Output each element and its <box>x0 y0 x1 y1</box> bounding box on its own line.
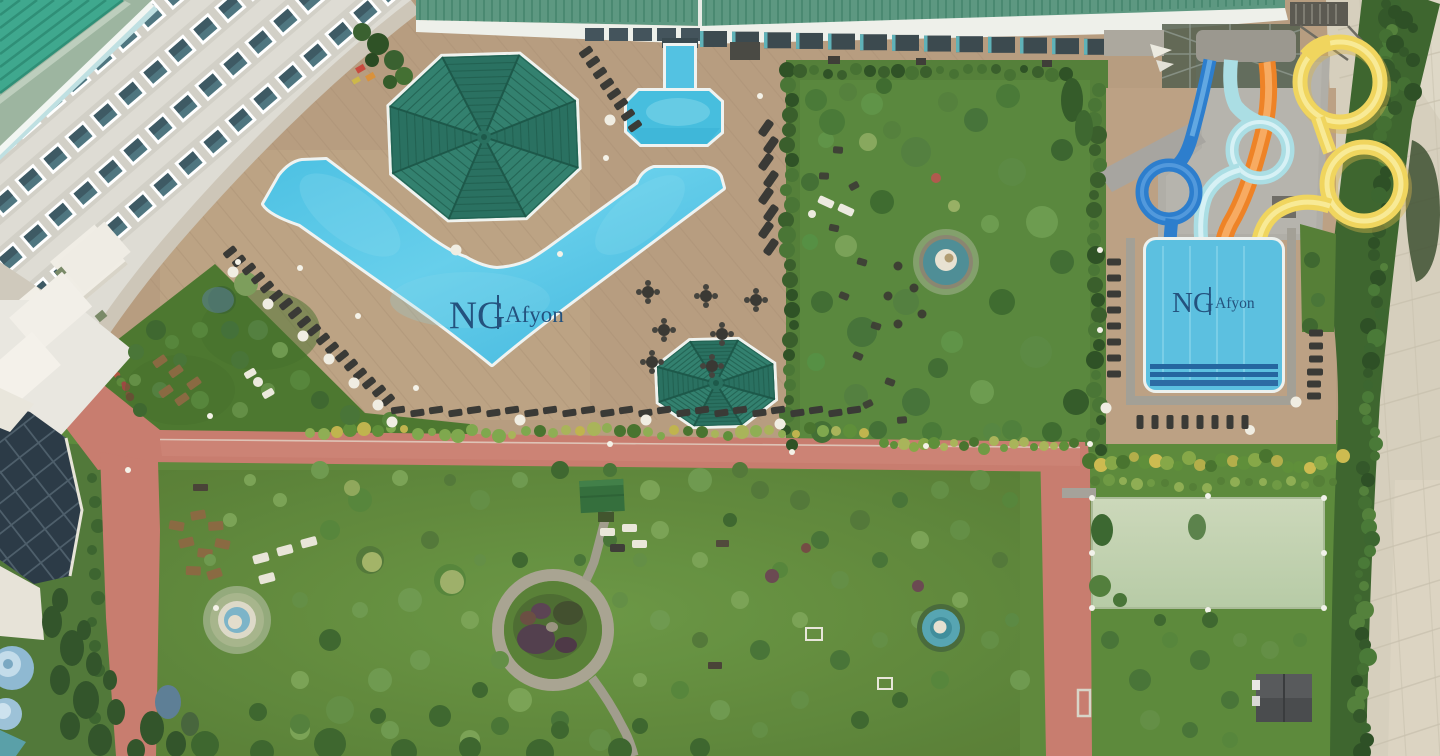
svg-text:NG: NG <box>1172 287 1214 319</box>
svg-text:NG: NG <box>449 294 505 337</box>
svg-text:Afyon: Afyon <box>1215 295 1255 312</box>
svg-text:Afyon: Afyon <box>505 302 564 327</box>
